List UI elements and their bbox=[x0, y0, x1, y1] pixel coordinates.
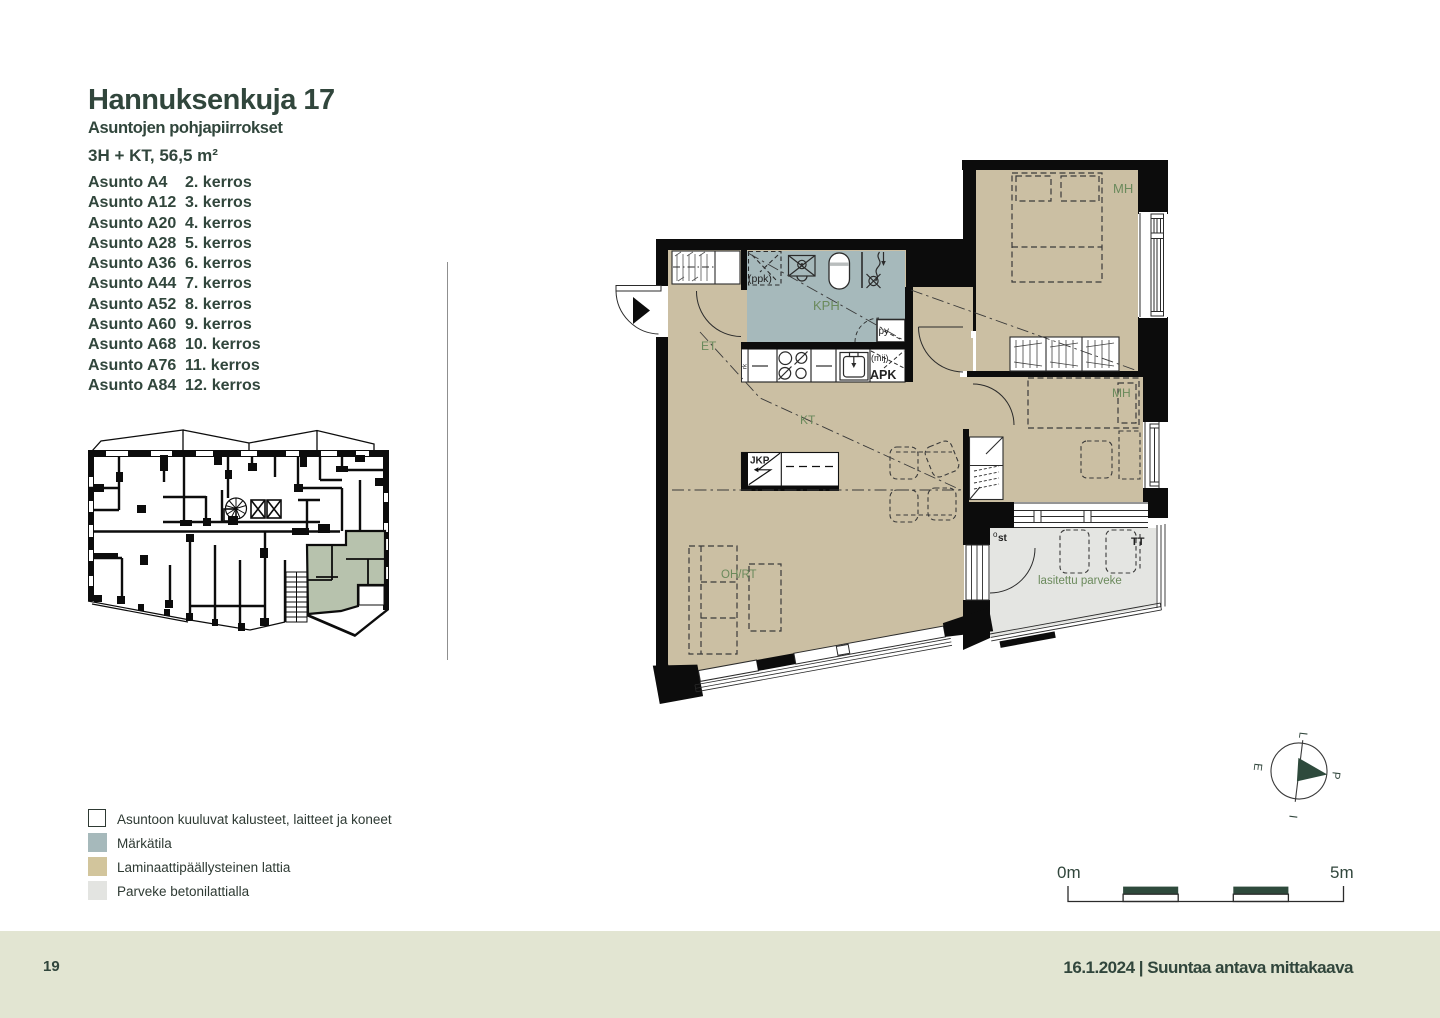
svg-text:E: E bbox=[1251, 762, 1264, 771]
svg-text:OH/RT: OH/RT bbox=[721, 569, 757, 581]
svg-text:st: st bbox=[998, 533, 1008, 544]
svg-text:lasitettu parveke: lasitettu parveke bbox=[1038, 575, 1122, 587]
svg-text:KPH: KPH bbox=[813, 298, 840, 313]
svg-text:I: I bbox=[1286, 814, 1298, 819]
svg-text:py: py bbox=[879, 326, 890, 337]
svg-text:(ppk): (ppk) bbox=[748, 273, 772, 285]
svg-text:JKP: JKP bbox=[750, 456, 770, 467]
svg-text:L: L bbox=[1296, 731, 1309, 739]
svg-text:KT: KT bbox=[800, 413, 816, 427]
svg-text:MH: MH bbox=[1112, 386, 1131, 400]
svg-text:(mij): (mij) bbox=[871, 353, 889, 363]
svg-text:MH: MH bbox=[1113, 181, 1133, 196]
svg-text:TT: TT bbox=[1131, 536, 1145, 548]
svg-text:APK: APK bbox=[870, 368, 896, 382]
svg-text:P: P bbox=[1329, 771, 1342, 780]
svg-text:ET: ET bbox=[701, 339, 717, 353]
